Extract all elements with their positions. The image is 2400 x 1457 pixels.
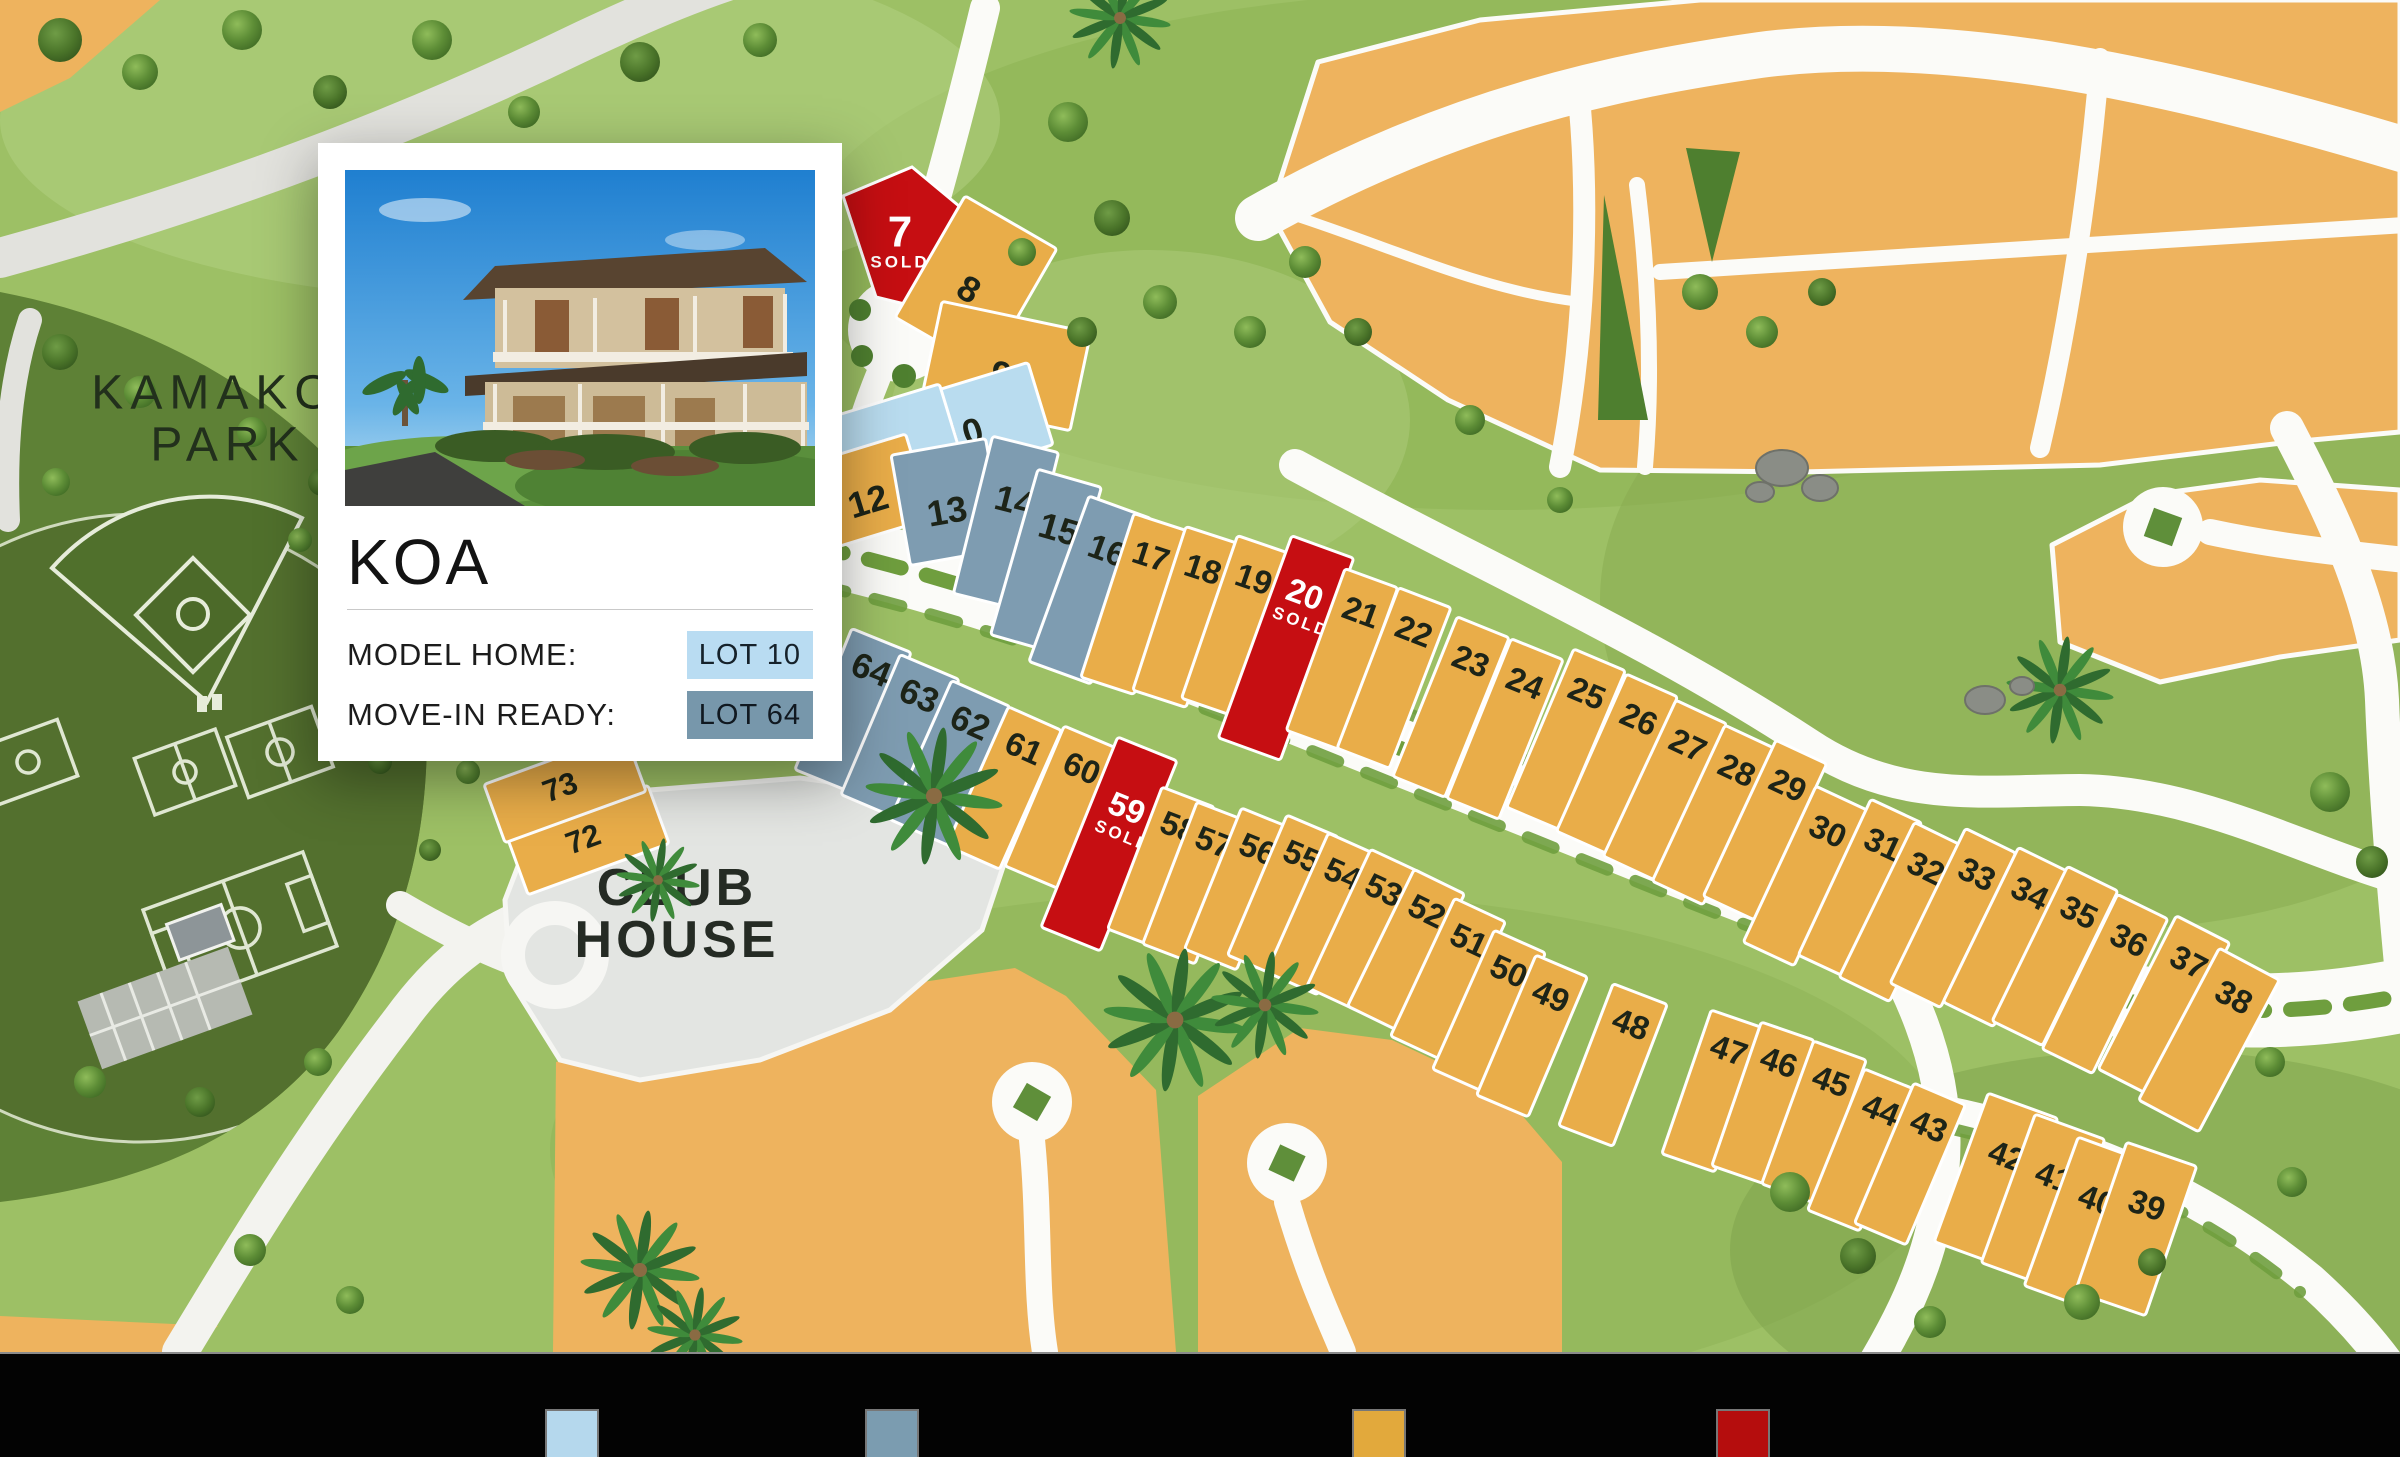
tree-icon [2356,846,2388,878]
model-home-photo [345,170,815,506]
tree-icon [1914,1306,1946,1338]
tree-icon [1234,316,1266,348]
park-name-line1: KAMAKO [91,367,338,420]
card-divider [347,609,813,610]
tree-icon [1048,102,1088,142]
community-name: KOA [347,525,491,599]
tree-icon [419,839,441,861]
tree-icon [122,54,158,90]
lot-number: 7 [888,208,912,257]
tree-icon [2255,1047,2285,1077]
tree-icon [508,96,540,128]
lot-info-card: KOA MODEL HOME: LOT 10 MOVE-IN READY: LO… [318,143,842,761]
tree-icon [1547,487,1573,513]
tree-icon [1840,1238,1876,1274]
tree-icon [2277,1167,2307,1197]
lot-sold-label: SOLD [870,253,929,272]
tree-icon [1008,238,1036,266]
model-home-label: MODEL HOME: [347,637,577,673]
tree-icon [2138,1248,2166,1276]
tree-icon [1094,200,1130,236]
tree-icon [1143,285,1177,319]
tree-icon [74,1066,106,1098]
tree-icon [2064,1284,2100,1320]
tree-icon [42,468,70,496]
tree-icon [1770,1172,1810,1212]
legend-bar [0,1352,2400,1457]
tree-icon [1746,316,1778,348]
tree-icon [185,1087,215,1117]
lot-number: 13 [924,487,971,534]
tree-icon [42,334,78,370]
legend-swatch-move-in-ready [865,1409,919,1457]
tree-icon [1682,274,1718,310]
move-in-ready-lot-badge[interactable]: LOT 64 [687,691,813,739]
tree-icon [456,760,480,784]
tree-icon [620,42,660,82]
tree-icon [743,23,777,57]
tree-icon [38,18,82,62]
tree-icon [1455,405,1485,435]
move-in-ready-label: MOVE-IN READY: [347,697,616,733]
tree-icon [1289,246,1321,278]
model-home-lot-badge[interactable]: LOT 10 [687,631,813,679]
tree-icon [412,20,452,60]
tree-icon [1067,317,1097,347]
tree-icon [222,10,262,50]
tree-icon [2310,772,2350,812]
tree-icon [313,75,347,109]
tree-icon [288,528,312,552]
legend-swatch-sold [1716,1409,1770,1457]
tree-icon [234,1234,266,1266]
club-house-label-line1: CLUB [597,859,757,917]
club-house-label-line2: HOUSE [575,911,780,969]
tree-icon [336,1286,364,1314]
tree-icon [1808,278,1836,306]
legend-swatch-model-home [545,1409,599,1457]
legend-swatch-available [1352,1409,1406,1457]
park-name-line2: PARK [150,419,305,472]
tree-icon [304,1048,332,1076]
tree-icon [1344,318,1372,346]
